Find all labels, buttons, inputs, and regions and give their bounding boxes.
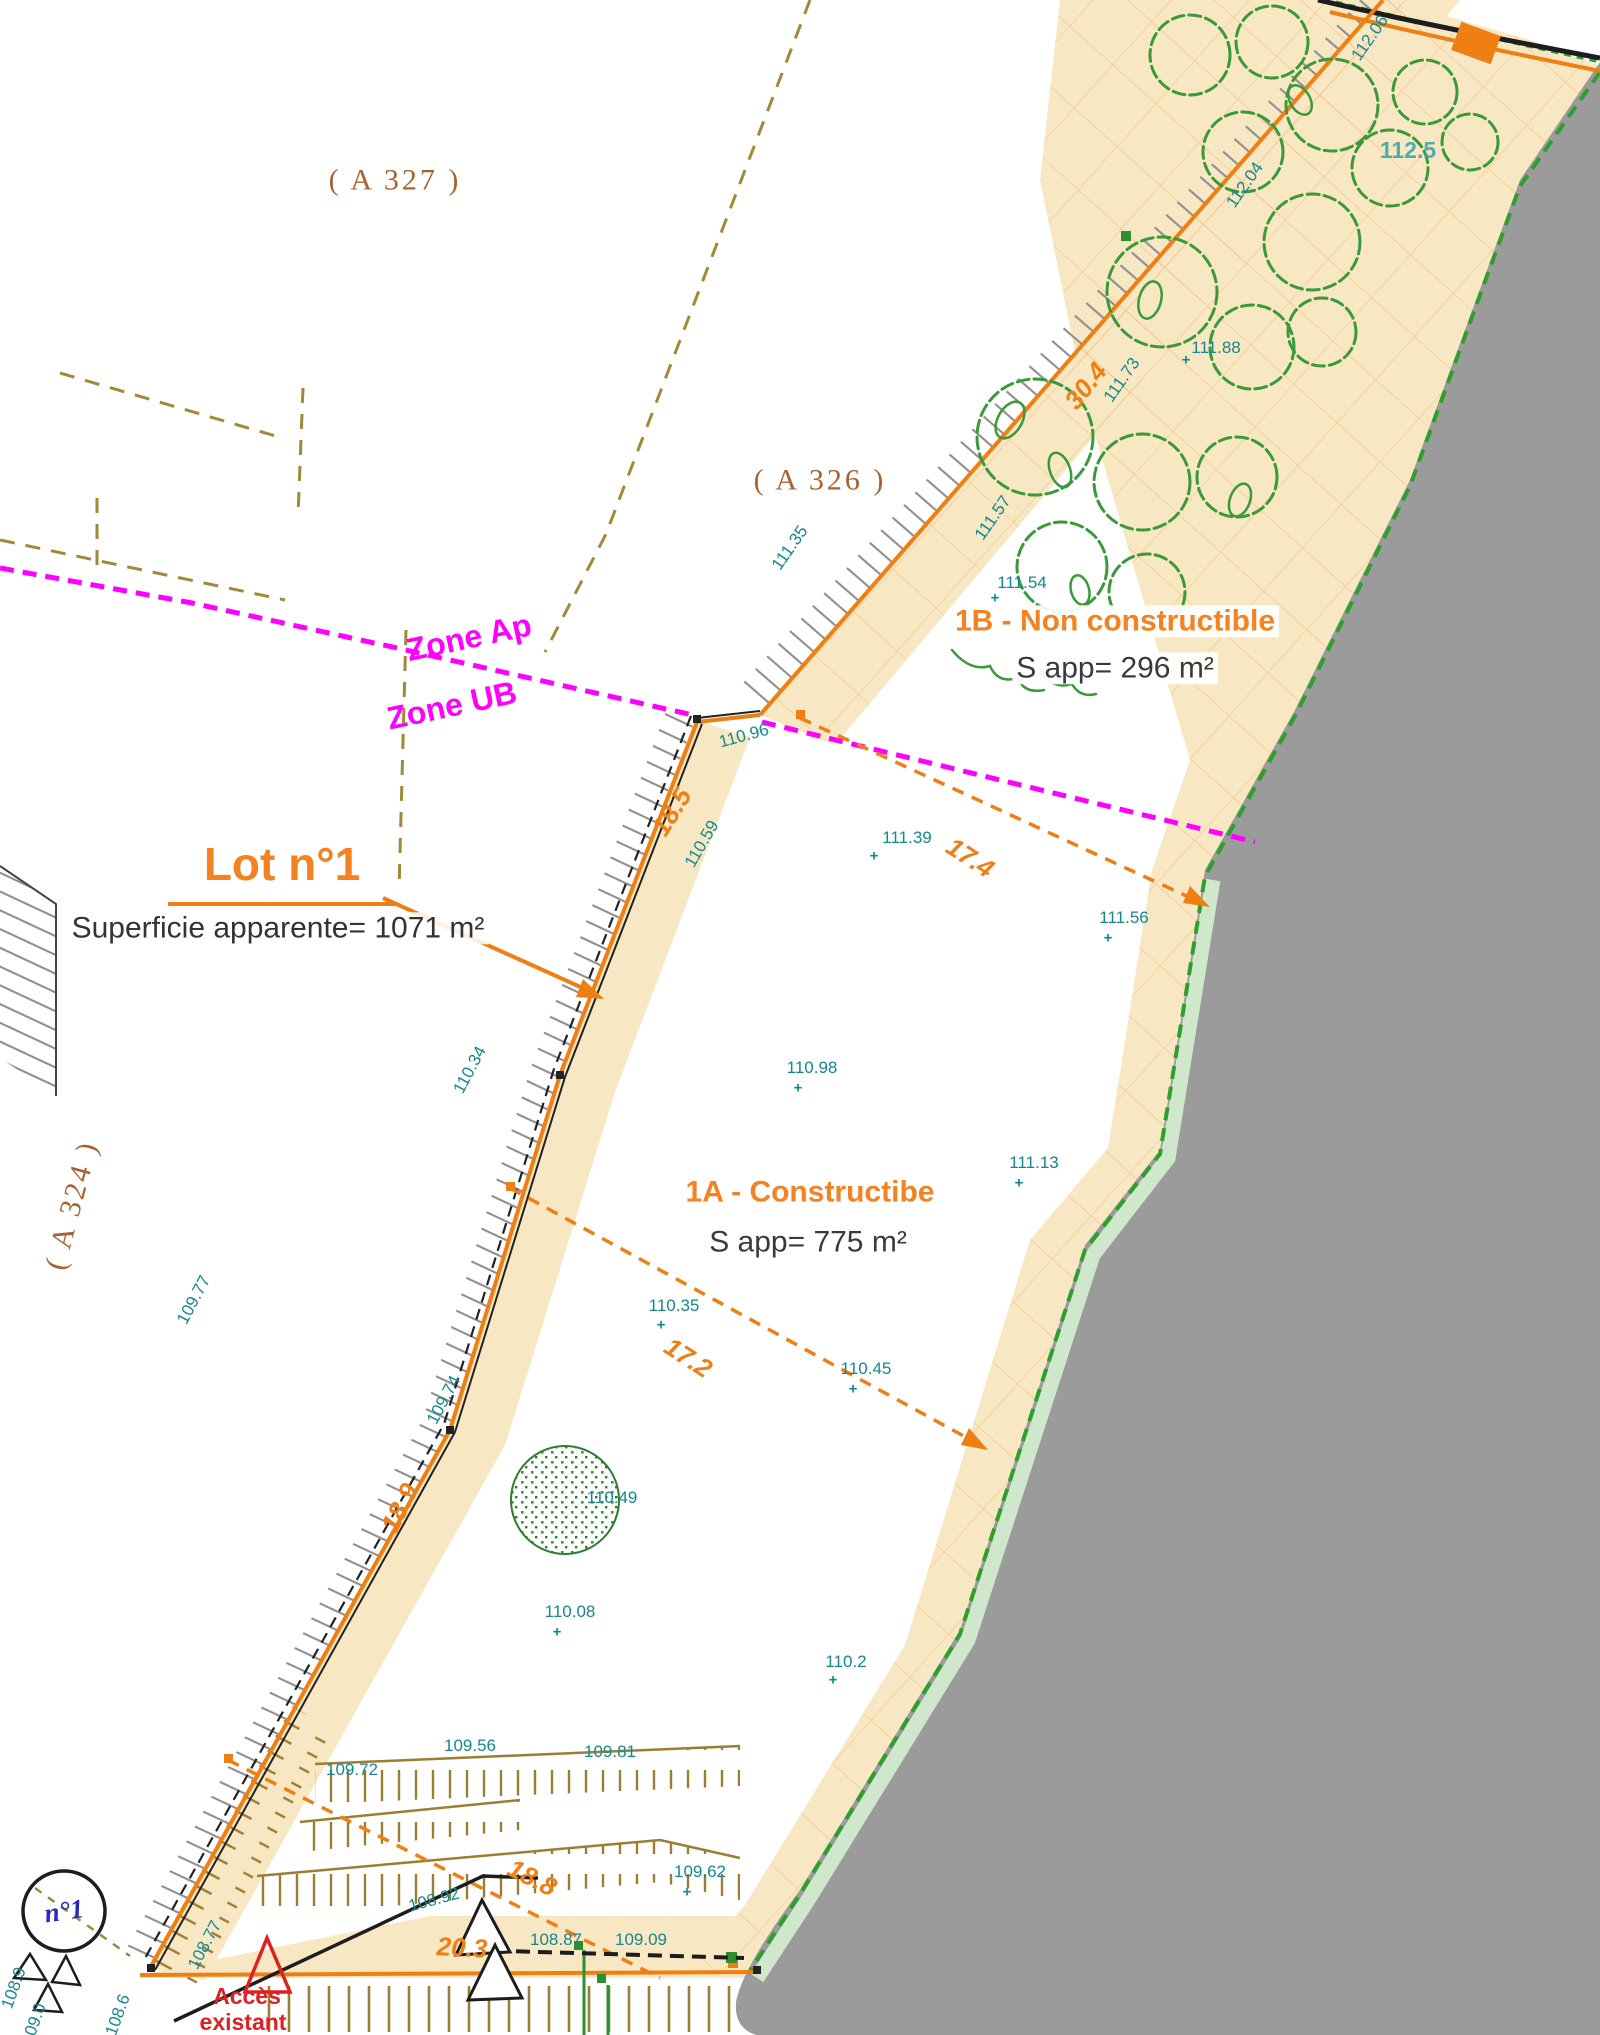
lot-marker-n1: n°1 — [43, 1894, 86, 1928]
elevation-point: 112.5 — [1380, 138, 1436, 162]
dimension: 17.2 — [659, 1333, 716, 1383]
elevation-point: 108.6 — [102, 1992, 133, 2035]
lot1-title: Lot n°1 — [199, 840, 365, 888]
elevation-marker: + — [794, 1080, 803, 1097]
elevation-point: 110.35 — [649, 1297, 700, 1315]
site-plan-map: ( A 327 )( A 326 )( A 324 )Zone ApZone U… — [0, 0, 1600, 2035]
elevation-point: 108.77 — [185, 1918, 225, 1972]
elevation-point: 110.45 — [841, 1360, 892, 1378]
elevation-point: 109.74 — [424, 1373, 464, 1427]
elevation-point: 109.56 — [444, 1737, 496, 1755]
elevation-point: 110.08 — [545, 1603, 596, 1621]
elevation-point: 108.9 — [0, 1965, 30, 2011]
parcel-ref-a324: ( A 324 ) — [40, 1137, 105, 1273]
elevation-point: 112.06 — [1348, 12, 1392, 64]
parcel-ref-a326: ( A 326 ) — [754, 464, 887, 496]
elevation-point: 109.0 — [18, 2001, 49, 2035]
elevation-point: 109.77 — [174, 1273, 214, 1327]
elevation-point: 111.57 — [972, 493, 1015, 544]
elevation-point: 109.81 — [584, 1743, 636, 1761]
elevation-point: 110.49 — [587, 1489, 638, 1507]
elevation-marker: + — [683, 1884, 692, 1901]
dimension: 18.9 — [376, 1479, 423, 1536]
map-annotations: ( A 327 )( A 326 )( A 324 )Zone ApZone U… — [0, 0, 1600, 2035]
elevation-point: 112.04 — [1223, 159, 1267, 211]
elevation-point: 108.87 — [530, 1931, 582, 1949]
zone1b-area: S app= 296 m² — [1012, 652, 1218, 684]
elevation-point: 110.59 — [682, 818, 723, 871]
elevation-point: 110.34 — [450, 1043, 490, 1096]
dimension: 20.3 — [436, 1933, 488, 1963]
zone-label-ap: Zone Ap — [403, 608, 534, 667]
elevation-marker: + — [991, 590, 1000, 607]
dimension: 18.5 — [647, 783, 697, 840]
zone1a-title: 1A - Constructibe — [682, 1176, 939, 1208]
elevation-point: 108.92 — [407, 1885, 462, 1916]
parcel-ref-a327: ( A 327 ) — [329, 164, 462, 196]
zone-label-ub: Zone UB — [384, 676, 520, 736]
elevation-marker: + — [829, 1672, 838, 1689]
zone1b-title: 1B - Non constructible — [951, 605, 1279, 637]
elevation-point: 109.09 — [615, 1931, 667, 1949]
elevation-point: 111.88 — [1191, 339, 1240, 357]
elevation-marker: + — [657, 1317, 666, 1334]
elevation-point: 111.35 — [769, 523, 812, 574]
elevation-point: 111.39 — [882, 829, 931, 847]
elevation-marker: + — [553, 1624, 562, 1641]
dimension: 17.4 — [941, 833, 998, 883]
elevation-marker: + — [1182, 352, 1191, 369]
elevation-point: 110.96 — [717, 721, 771, 751]
elevation-point: 109.72 — [326, 1761, 378, 1779]
elevation-point: 110.2 — [825, 1653, 866, 1671]
elevation-point: 111.13 — [1009, 1154, 1058, 1172]
elevation-marker: + — [1104, 930, 1113, 947]
elevation-marker: + — [1015, 1175, 1024, 1192]
elevation-point: 109.62 — [674, 1863, 726, 1881]
lot1-area: Superficie apparente= 1071 m² — [68, 912, 489, 944]
zone1a-area: S app= 775 m² — [705, 1226, 911, 1258]
elevation-point: 111.54 — [997, 574, 1046, 592]
elevation-point: 111.56 — [1099, 909, 1148, 927]
dimension: 18.8 — [503, 1854, 560, 1901]
access-label-line1: Accès — [213, 1984, 281, 2008]
elevation-marker: + — [849, 1381, 858, 1398]
elevation-marker: + — [870, 848, 879, 865]
access-label-line2: existant — [200, 2010, 287, 2034]
elevation-point: 110.98 — [787, 1059, 838, 1077]
